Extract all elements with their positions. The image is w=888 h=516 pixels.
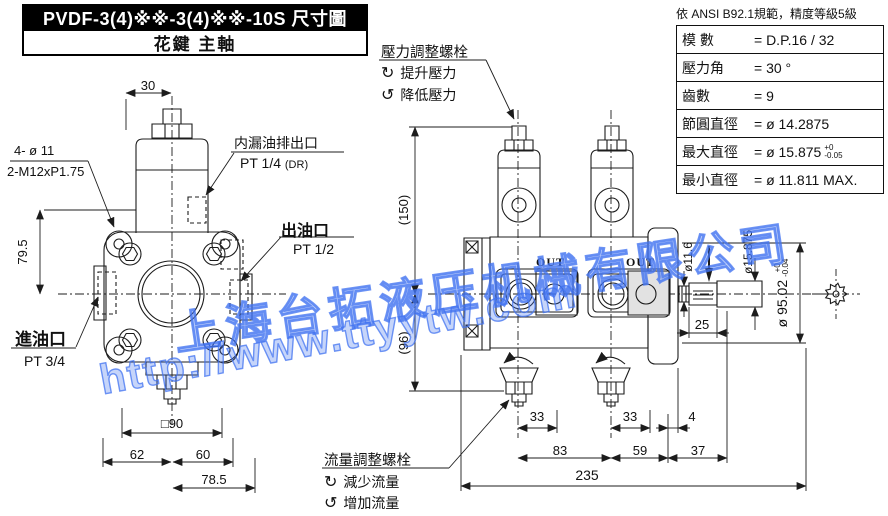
bolt-holes-label: 4- ø 11 xyxy=(14,143,54,158)
dim-25: 25 xyxy=(690,317,714,332)
pressure-bolt1-nut xyxy=(505,140,533,151)
dim-33a: 33 xyxy=(527,409,547,424)
dim-4: 4 xyxy=(686,409,698,424)
spec-row-min-dia: 最小直徑 = ø 11.811 MAX. xyxy=(677,166,883,194)
mount-thread-label: 2-M12xP1.75 xyxy=(7,164,84,179)
drain-port-spec: PT 1/4 (DR) xyxy=(240,155,308,171)
dim-60: 60 xyxy=(188,447,218,462)
inlet-port-spec: PT 3/4 xyxy=(24,353,65,369)
subtitle-box: 花鍵 主軸 xyxy=(22,31,368,56)
dim-62: 62 xyxy=(122,447,152,462)
dim-150: (150) xyxy=(396,188,410,232)
out-port2 xyxy=(588,269,670,317)
out-port1 xyxy=(496,269,578,317)
lug-hole-bottom-left xyxy=(114,345,124,355)
dim-235: 235 xyxy=(569,467,605,483)
outlet-port-spec: PT 1/2 xyxy=(293,241,334,257)
spline-spec-table: 依 ANSI B92.1規範，精度等級5級 模 數 = D.P.16 / 32 … xyxy=(676,2,884,194)
flow-bolt1 xyxy=(500,368,538,406)
spec-row-max-dia: 最大直徑 = ø 15.875 +0 -0.05 xyxy=(677,138,883,166)
out-label-2: OUT xyxy=(626,255,655,270)
inlet-port-label: 進油口 xyxy=(15,325,66,350)
pressure-bolt2-nut xyxy=(598,140,626,151)
spec-row-teeth: 齒數 = 9 xyxy=(677,82,883,110)
subtitle-text: 花鍵 主軸 xyxy=(154,30,237,55)
dim-96: (96) xyxy=(396,325,410,361)
flow-increase-row: ↺ 增加流量 xyxy=(324,493,399,513)
outlet-boss xyxy=(240,274,252,320)
dim-shaft-11-6: ø11.6 xyxy=(681,235,695,279)
side-tower2 xyxy=(591,150,633,237)
dim-59: 59 xyxy=(629,443,651,458)
max-dia-tolerance: +0 -0.05 xyxy=(824,144,842,160)
flow-adjust-title: 流量調整螺栓 xyxy=(324,449,411,470)
drain-port-hidden xyxy=(188,197,206,223)
rotation-arc1 xyxy=(504,357,533,364)
spec-table-header: 依 ANSI B92.1規範，精度等級5級 xyxy=(676,2,884,25)
flow-decrease-row: ↻ 減少流量 xyxy=(324,472,399,492)
outlet-port-label: 出油口 xyxy=(281,217,329,241)
pressure-adjust-title: 壓力調整螺栓 xyxy=(381,41,468,62)
counterclockwise-arrow-icon: ↺ xyxy=(324,495,337,511)
dim-square-90: □90 xyxy=(152,416,192,431)
tower1-boss xyxy=(502,188,536,222)
lug-hole-top-left xyxy=(114,239,124,249)
dim-83: 83 xyxy=(550,443,570,458)
spec-table-body: 模 數 = D.P.16 / 32 壓力角 = 30 ° 齒數 = 9 節圓直徑… xyxy=(676,25,884,194)
dim-78-5: 78.5 xyxy=(194,472,234,487)
outlet-thread-hidden xyxy=(230,280,248,314)
spec-row-pressure-angle: 壓力角 = 30 ° xyxy=(677,54,883,82)
drawing-canvas: PVDF-3(4)※※-3(4)※※-10S 尺寸圖 花鍵 主軸 依 ANSI … xyxy=(0,0,888,516)
inlet-thread-hidden xyxy=(98,272,116,314)
tower2-hole xyxy=(605,198,619,212)
clockwise-arrow-icon: ↻ xyxy=(381,65,394,81)
pressure-bolt2-stem xyxy=(605,126,619,140)
spec-row-pitch-dia: 節圓直徑 = ø 14.2875 xyxy=(677,110,883,138)
body-dia-tolerance: +0 -0.04 xyxy=(774,259,790,277)
pressure-bolt1-stem xyxy=(512,126,526,140)
front-view-dimensions xyxy=(10,60,514,493)
title-bar: PVDF-3(4)※※-3(4)※※-10S 尺寸圖 xyxy=(22,4,368,31)
pressure-decrease-row: ↺ 降低壓力 xyxy=(381,85,456,105)
dim-shaft-15-875: ø15.875 xyxy=(741,222,755,282)
clockwise-arrow-icon: ↻ xyxy=(324,474,337,490)
tower1-hole xyxy=(512,198,526,212)
dim-33b: 33 xyxy=(620,409,640,424)
drain-port-label: 内漏油排出口 xyxy=(234,133,318,153)
dim-30: 30 xyxy=(136,78,160,93)
dim-body-95-02: ø 95.02 +0 -0.04 xyxy=(774,247,790,339)
counterclockwise-arrow-icon: ↺ xyxy=(381,87,394,103)
title-text: PVDF-3(4)※※-3(4)※※-10S 尺寸圖 xyxy=(43,5,347,31)
spec-row-module: 模 數 = D.P.16 / 32 xyxy=(677,26,883,54)
rotation-arc2 xyxy=(596,357,625,364)
tower2-boss xyxy=(595,188,629,222)
side-tower1 xyxy=(498,150,540,237)
front-bottom-nut-facets xyxy=(166,375,176,389)
lug-hole-bottom-right xyxy=(220,345,230,355)
dim-79-5: 79.5 xyxy=(15,230,29,274)
out-label-1: OUT xyxy=(536,255,565,270)
dim-37: 37 xyxy=(687,443,709,458)
pressure-increase-row: ↻ 提升壓力 xyxy=(381,63,456,83)
